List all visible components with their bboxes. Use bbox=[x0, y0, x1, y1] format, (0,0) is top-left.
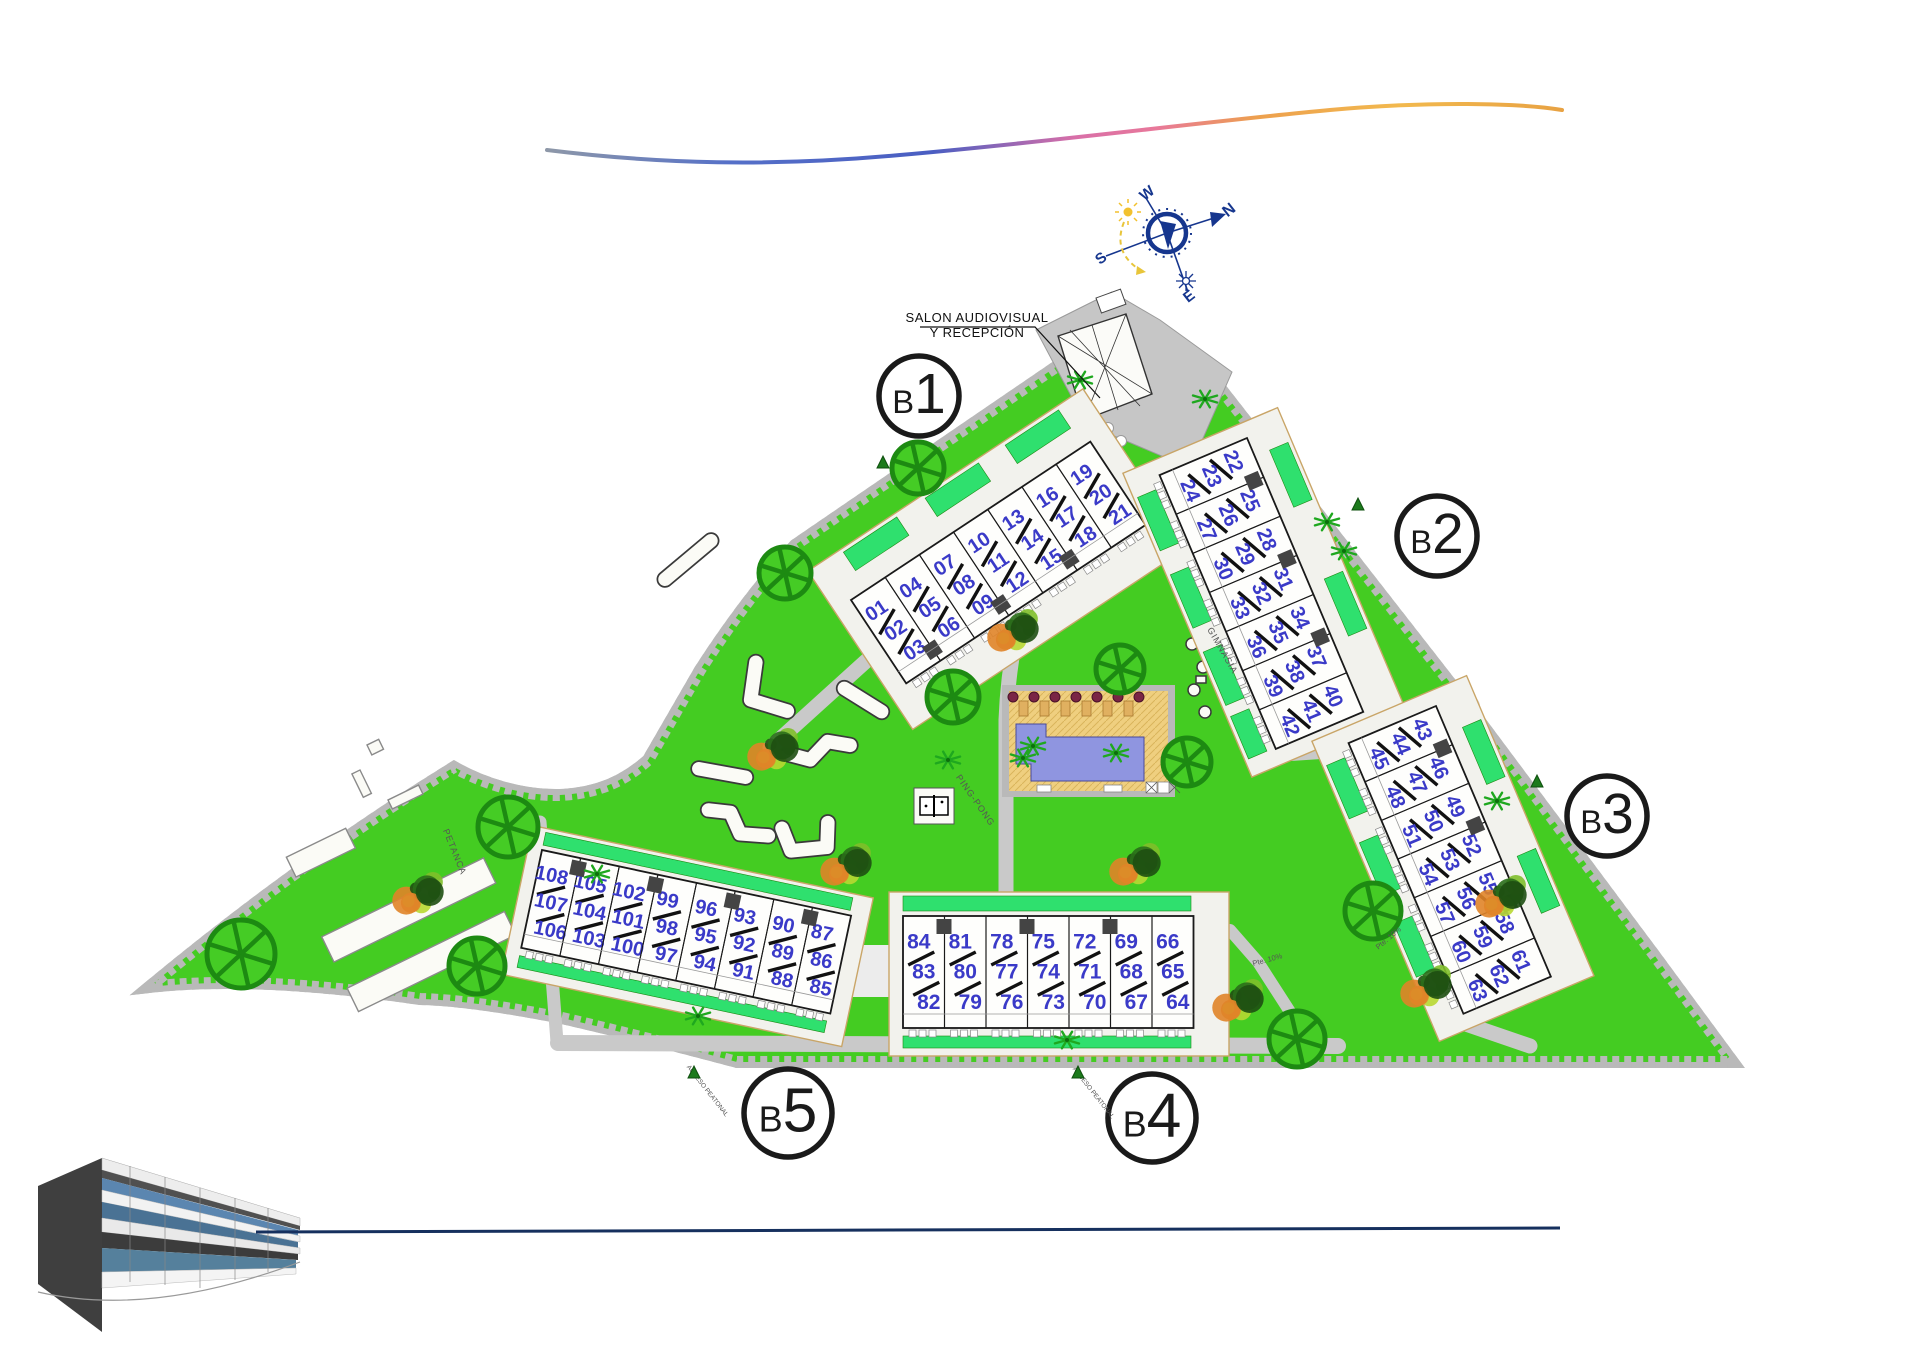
terrace-tick bbox=[535, 953, 543, 961]
badge-B5: B5 bbox=[744, 1069, 832, 1157]
reception-label-line1: SALON AUDIOVISUAL bbox=[906, 310, 1049, 325]
terrace-tick bbox=[1168, 1030, 1175, 1037]
terrace-tick bbox=[1178, 1030, 1185, 1037]
tree-icon bbox=[892, 442, 944, 494]
palm-trunk bbox=[595, 872, 599, 876]
unit-number: 77 bbox=[995, 961, 1018, 984]
unit-number: 82 bbox=[917, 991, 940, 1014]
bush-blob bbox=[1133, 849, 1161, 877]
bush-blob bbox=[416, 878, 444, 906]
terrace-tick bbox=[1085, 1030, 1092, 1037]
unit-number: 80 bbox=[954, 961, 977, 984]
badge-B3: B3 bbox=[1567, 776, 1647, 856]
compass-w: W bbox=[1136, 182, 1158, 205]
developer-logo bbox=[38, 1158, 300, 1332]
bush-blob bbox=[1236, 985, 1264, 1013]
badge-B2: B2 bbox=[1397, 496, 1477, 576]
top-gradient-wave bbox=[547, 104, 1562, 163]
bush-blob bbox=[1424, 971, 1452, 999]
terrace-tick bbox=[1137, 1030, 1144, 1037]
stair-hatch bbox=[569, 859, 587, 877]
compass-rose: N W S E bbox=[1092, 182, 1239, 306]
play-equipment bbox=[665, 541, 711, 580]
access-marker-icon bbox=[877, 456, 889, 468]
badge-B1: B1 bbox=[879, 356, 959, 436]
parking-strip bbox=[903, 1036, 1191, 1048]
tree-icon bbox=[478, 797, 538, 857]
unit-number: 90 bbox=[770, 912, 796, 938]
tree-icon bbox=[759, 547, 811, 599]
terrace-tick bbox=[612, 970, 620, 978]
terrace-tick bbox=[1095, 1030, 1102, 1037]
terrace-tick bbox=[622, 972, 630, 980]
access-marker-icon bbox=[1531, 775, 1543, 787]
terrace-tick bbox=[602, 967, 610, 975]
unit-number: 76 bbox=[1000, 991, 1023, 1014]
terrace-tick bbox=[680, 984, 688, 992]
palm-trunk bbox=[1021, 756, 1025, 760]
access-marker-icon bbox=[1352, 498, 1364, 510]
palm-trunk bbox=[1031, 744, 1035, 748]
terrace-tick bbox=[728, 994, 736, 1002]
terrace-tick bbox=[545, 955, 553, 963]
terrace-tick bbox=[992, 1030, 999, 1037]
terrace-tick bbox=[738, 996, 746, 1004]
unit-number: 67 bbox=[1125, 991, 1148, 1014]
site-plan-drawing: 0102030405060708091011121314151617181920… bbox=[0, 0, 1920, 1357]
unit-number: 89 bbox=[770, 939, 796, 965]
unit-number: 96 bbox=[693, 896, 719, 922]
terrace-tick bbox=[919, 1030, 926, 1037]
terrace-tick bbox=[961, 1030, 968, 1037]
parking-strip bbox=[903, 896, 1191, 911]
stair-hatch bbox=[646, 876, 664, 894]
unit-number: 92 bbox=[731, 931, 757, 957]
palm-trunk bbox=[1203, 397, 1207, 401]
tree-icon bbox=[449, 938, 505, 994]
unit-number: 72 bbox=[1073, 930, 1096, 953]
terrace-tick bbox=[1117, 1030, 1124, 1037]
terrace-tick bbox=[796, 1009, 804, 1017]
bush-blob bbox=[844, 849, 872, 877]
terrace-tick bbox=[971, 1030, 978, 1037]
unit-number: 79 bbox=[959, 991, 982, 1014]
unit-number: 83 bbox=[912, 961, 935, 984]
tree-icon bbox=[927, 671, 979, 723]
tree-icon bbox=[1096, 645, 1144, 693]
unit-number: 64 bbox=[1166, 991, 1190, 1014]
palm-trunk bbox=[1342, 549, 1346, 553]
stair-hatch bbox=[1103, 919, 1118, 934]
play-fill bbox=[665, 541, 711, 580]
bush-blob bbox=[1499, 881, 1527, 909]
unit-number: 84 bbox=[907, 930, 931, 953]
palm-trunk bbox=[946, 758, 950, 762]
tree-icon bbox=[1269, 1011, 1325, 1067]
unit-number: 86 bbox=[808, 948, 834, 974]
terrace-tick bbox=[951, 1030, 958, 1037]
terrace-tick bbox=[815, 1013, 823, 1021]
terrace-tick bbox=[1158, 1030, 1165, 1037]
unit-number: 74 bbox=[1037, 961, 1061, 984]
terrace-tick bbox=[1127, 1030, 1134, 1037]
palm-trunk bbox=[1078, 378, 1082, 382]
star-icon bbox=[1176, 271, 1196, 291]
terrace-tick bbox=[661, 980, 669, 988]
tree-icon bbox=[1163, 738, 1211, 786]
unit-number: 68 bbox=[1120, 961, 1144, 984]
compass-north-arrowhead bbox=[1210, 212, 1226, 227]
compass-e: E bbox=[1180, 287, 1198, 307]
bush-blob bbox=[771, 734, 799, 762]
bush-blob bbox=[1011, 615, 1039, 643]
terrace-tick bbox=[777, 1004, 785, 1012]
terrace-tick bbox=[929, 1030, 936, 1037]
unit-number: 69 bbox=[1115, 930, 1138, 953]
unit-number: 81 bbox=[949, 930, 973, 953]
terrace-tick bbox=[651, 978, 659, 986]
unit-number: 70 bbox=[1083, 991, 1106, 1014]
terrace-tick bbox=[583, 963, 591, 971]
palm-trunk bbox=[696, 1014, 700, 1018]
terrace-tick bbox=[1002, 1030, 1009, 1037]
terrace-tick bbox=[641, 976, 649, 984]
terrace-tick bbox=[690, 986, 698, 994]
ping-pong-table bbox=[914, 788, 954, 824]
stair-hatch bbox=[937, 919, 952, 934]
terrace-tick bbox=[757, 1000, 765, 1008]
terrace-tick bbox=[574, 961, 582, 969]
palm-trunk bbox=[1495, 799, 1499, 803]
terrace-tick bbox=[805, 1011, 813, 1019]
palm-trunk bbox=[1114, 751, 1118, 755]
stair-hatch bbox=[1020, 919, 1035, 934]
unit-number: 71 bbox=[1078, 961, 1102, 984]
unit-number: 95 bbox=[692, 923, 718, 949]
palm-trunk bbox=[1065, 1038, 1069, 1042]
compass-s: S bbox=[1092, 249, 1110, 269]
unit-number: 78 bbox=[990, 930, 1014, 953]
block-B4: 8483828180797877767574737271706968676665… bbox=[889, 892, 1229, 1056]
compass-n: N bbox=[1219, 200, 1239, 221]
unit-number: 98 bbox=[654, 915, 680, 941]
stair-hatch bbox=[724, 892, 742, 910]
terrace-tick bbox=[1034, 1030, 1041, 1037]
terrace-tick bbox=[767, 1002, 775, 1010]
unit-number: 65 bbox=[1161, 961, 1185, 984]
unit-number: 66 bbox=[1156, 930, 1179, 953]
palm-trunk bbox=[1325, 520, 1329, 524]
terrace-tick bbox=[564, 959, 572, 967]
stair-hatch bbox=[801, 909, 819, 927]
site-plan-page: 0102030405060708091011121314151617181920… bbox=[0, 0, 1920, 1357]
terrace-tick bbox=[699, 988, 707, 996]
terrace-tick bbox=[1044, 1030, 1051, 1037]
tree-icon bbox=[207, 920, 275, 988]
badge-B4: B4 bbox=[1108, 1074, 1196, 1162]
terrace-tick bbox=[525, 951, 533, 959]
terrace-tick bbox=[1012, 1030, 1019, 1037]
terrace-tick bbox=[718, 992, 726, 1000]
sun-icon bbox=[1115, 199, 1146, 275]
terrace-tick bbox=[909, 1030, 916, 1037]
bottom-rule bbox=[256, 1228, 1560, 1232]
unit-number: 73 bbox=[1042, 991, 1065, 1014]
unit-number: 75 bbox=[1032, 930, 1056, 953]
